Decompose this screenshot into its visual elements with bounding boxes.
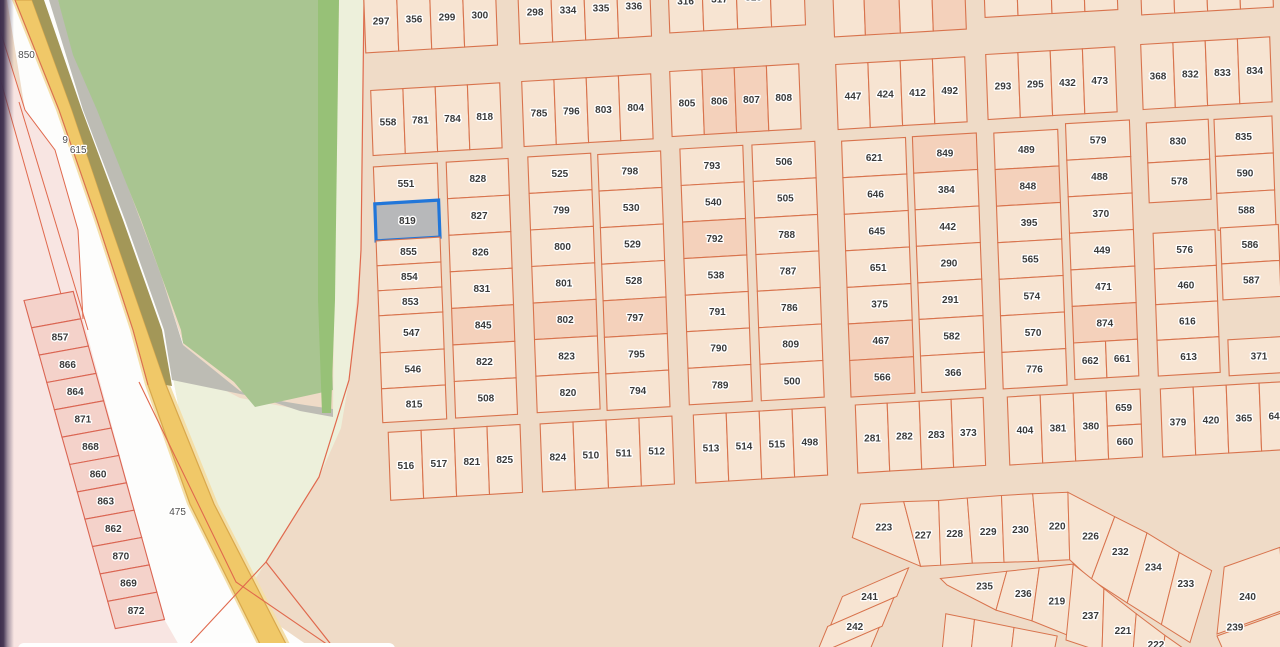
svg-text:467: 467 bbox=[873, 336, 890, 347]
svg-text:471: 471 bbox=[1095, 282, 1112, 293]
svg-text:833: 833 bbox=[1214, 68, 1231, 79]
svg-text:863: 863 bbox=[97, 497, 114, 508]
svg-text:869: 869 bbox=[120, 579, 137, 590]
svg-text:300: 300 bbox=[472, 11, 489, 22]
svg-text:447: 447 bbox=[845, 92, 862, 103]
svg-text:787: 787 bbox=[780, 267, 797, 278]
svg-text:797: 797 bbox=[627, 313, 644, 324]
svg-text:823: 823 bbox=[558, 352, 575, 363]
svg-text:616: 616 bbox=[1179, 316, 1196, 327]
svg-text:570: 570 bbox=[1025, 328, 1042, 339]
svg-text:281: 281 bbox=[864, 434, 881, 445]
svg-text:576: 576 bbox=[1176, 245, 1193, 256]
svg-text:850: 850 bbox=[18, 50, 35, 61]
svg-text:590: 590 bbox=[1237, 169, 1254, 180]
svg-text:645: 645 bbox=[869, 226, 886, 237]
svg-text:661: 661 bbox=[1114, 354, 1131, 365]
svg-text:788: 788 bbox=[778, 230, 795, 241]
svg-text:826: 826 bbox=[472, 247, 489, 258]
svg-text:547: 547 bbox=[403, 328, 420, 339]
svg-text:866: 866 bbox=[59, 360, 76, 371]
svg-text:791: 791 bbox=[709, 307, 726, 318]
svg-text:234: 234 bbox=[1145, 562, 1162, 573]
svg-text:475: 475 bbox=[169, 507, 186, 518]
svg-text:424: 424 bbox=[877, 90, 894, 101]
svg-text:798: 798 bbox=[621, 167, 638, 178]
svg-text:297: 297 bbox=[373, 17, 390, 28]
svg-text:805: 805 bbox=[679, 99, 696, 110]
svg-text:498: 498 bbox=[801, 438, 818, 449]
svg-text:802: 802 bbox=[557, 315, 574, 326]
svg-text:804: 804 bbox=[627, 103, 644, 114]
svg-text:540: 540 bbox=[705, 198, 722, 209]
svg-text:449: 449 bbox=[1094, 245, 1111, 256]
svg-text:232: 232 bbox=[1112, 547, 1129, 558]
svg-text:489: 489 bbox=[1018, 145, 1035, 156]
svg-text:512: 512 bbox=[648, 447, 665, 458]
svg-text:233: 233 bbox=[1177, 579, 1194, 590]
svg-text:420: 420 bbox=[1203, 416, 1220, 427]
svg-text:815: 815 bbox=[406, 399, 423, 410]
svg-text:442: 442 bbox=[939, 222, 956, 233]
svg-text:515: 515 bbox=[769, 440, 786, 451]
svg-text:579: 579 bbox=[1090, 136, 1107, 147]
svg-text:831: 831 bbox=[473, 284, 490, 295]
svg-text:290: 290 bbox=[941, 258, 958, 269]
svg-text:830: 830 bbox=[1170, 137, 1187, 148]
svg-text:230: 230 bbox=[1012, 525, 1029, 536]
svg-text:872: 872 bbox=[128, 606, 145, 617]
svg-text:227: 227 bbox=[915, 530, 932, 541]
svg-text:235: 235 bbox=[976, 581, 993, 592]
svg-text:283: 283 bbox=[928, 430, 945, 441]
svg-text:825: 825 bbox=[496, 455, 513, 466]
svg-text:530: 530 bbox=[623, 203, 640, 214]
svg-text:517: 517 bbox=[431, 459, 448, 470]
svg-text:356: 356 bbox=[406, 15, 423, 26]
svg-text:384: 384 bbox=[938, 185, 955, 196]
svg-text:827: 827 bbox=[471, 211, 488, 222]
svg-text:223: 223 bbox=[876, 522, 893, 533]
svg-text:809: 809 bbox=[782, 340, 799, 351]
svg-text:801: 801 bbox=[556, 279, 573, 290]
svg-text:808: 808 bbox=[775, 93, 792, 104]
svg-text:298: 298 bbox=[527, 8, 544, 19]
svg-text:807: 807 bbox=[743, 95, 760, 106]
svg-text:529: 529 bbox=[624, 240, 641, 251]
svg-text:473: 473 bbox=[1091, 76, 1108, 87]
svg-text:528: 528 bbox=[625, 276, 642, 287]
svg-text:510: 510 bbox=[582, 451, 599, 462]
svg-text:412: 412 bbox=[909, 88, 926, 99]
svg-text:793: 793 bbox=[704, 161, 721, 172]
svg-text:582: 582 bbox=[943, 331, 960, 342]
svg-text:828: 828 bbox=[469, 174, 486, 185]
svg-text:848: 848 bbox=[1019, 182, 1036, 193]
svg-text:506: 506 bbox=[776, 157, 793, 168]
svg-text:800: 800 bbox=[554, 242, 571, 253]
svg-text:228: 228 bbox=[946, 529, 963, 540]
svg-text:538: 538 bbox=[708, 271, 725, 282]
svg-text:565: 565 bbox=[1022, 255, 1039, 266]
svg-text:226: 226 bbox=[1082, 531, 1099, 542]
svg-text:365: 365 bbox=[1236, 414, 1253, 425]
svg-text:432: 432 bbox=[1059, 78, 1076, 89]
svg-text:660: 660 bbox=[1117, 437, 1134, 448]
svg-text:317: 317 bbox=[711, 0, 728, 6]
svg-text:860: 860 bbox=[90, 469, 107, 480]
svg-text:551: 551 bbox=[398, 179, 415, 190]
svg-text:291: 291 bbox=[942, 295, 959, 306]
svg-text:368: 368 bbox=[1150, 72, 1167, 83]
svg-text:781: 781 bbox=[412, 116, 429, 127]
svg-text:375: 375 bbox=[871, 299, 888, 310]
svg-text:832: 832 bbox=[1182, 70, 1199, 81]
svg-text:316: 316 bbox=[677, 0, 694, 8]
svg-text:784: 784 bbox=[444, 114, 461, 125]
svg-text:785: 785 bbox=[531, 109, 548, 120]
svg-text:819: 819 bbox=[399, 216, 416, 227]
svg-text:648: 648 bbox=[1268, 412, 1280, 423]
svg-text:404: 404 bbox=[1017, 426, 1034, 437]
svg-text:239: 239 bbox=[1227, 623, 1244, 634]
svg-text:864: 864 bbox=[67, 387, 84, 398]
svg-text:460: 460 bbox=[1178, 281, 1195, 292]
svg-text:299: 299 bbox=[439, 13, 456, 24]
svg-text:513: 513 bbox=[703, 444, 720, 455]
svg-text:855: 855 bbox=[400, 247, 417, 258]
svg-text:818: 818 bbox=[476, 112, 493, 123]
svg-text:558: 558 bbox=[380, 118, 397, 129]
svg-text:824: 824 bbox=[549, 453, 566, 464]
svg-text:849: 849 bbox=[937, 149, 954, 160]
svg-text:796: 796 bbox=[563, 107, 580, 118]
svg-text:662: 662 bbox=[1082, 356, 1099, 367]
svg-text:799: 799 bbox=[553, 206, 570, 217]
svg-text:615: 615 bbox=[70, 145, 87, 156]
svg-text:578: 578 bbox=[1171, 177, 1188, 188]
svg-text:587: 587 bbox=[1243, 276, 1260, 287]
svg-text:370: 370 bbox=[1092, 209, 1109, 220]
svg-text:854: 854 bbox=[401, 272, 418, 283]
svg-text:220: 220 bbox=[1049, 521, 1066, 532]
svg-text:835: 835 bbox=[1235, 132, 1252, 143]
svg-text:786: 786 bbox=[781, 303, 798, 314]
svg-text:373: 373 bbox=[960, 428, 977, 439]
svg-text:336: 336 bbox=[626, 2, 643, 13]
svg-text:371: 371 bbox=[1251, 352, 1268, 363]
svg-text:505: 505 bbox=[777, 194, 794, 205]
svg-text:845: 845 bbox=[475, 320, 492, 331]
svg-text:492: 492 bbox=[941, 86, 958, 97]
svg-text:488: 488 bbox=[1091, 172, 1108, 183]
svg-text:222: 222 bbox=[1148, 640, 1165, 647]
svg-text:659: 659 bbox=[1115, 403, 1132, 414]
svg-text:546: 546 bbox=[404, 365, 421, 376]
svg-text:874: 874 bbox=[1096, 318, 1113, 329]
svg-text:293: 293 bbox=[995, 82, 1012, 93]
svg-text:806: 806 bbox=[711, 97, 728, 108]
svg-text:318: 318 bbox=[745, 0, 762, 4]
svg-text:295: 295 bbox=[1027, 80, 1044, 91]
svg-text:790: 790 bbox=[710, 344, 727, 355]
svg-text:588: 588 bbox=[1238, 206, 1255, 217]
svg-text:319: 319 bbox=[779, 0, 796, 2]
svg-text:792: 792 bbox=[706, 234, 723, 245]
svg-text:862: 862 bbox=[105, 524, 122, 535]
svg-text:221: 221 bbox=[1115, 626, 1132, 637]
svg-text:511: 511 bbox=[616, 449, 633, 460]
svg-text:219: 219 bbox=[1048, 596, 1065, 607]
svg-text:242: 242 bbox=[847, 622, 864, 633]
svg-text:574: 574 bbox=[1023, 291, 1040, 302]
svg-text:236: 236 bbox=[1015, 589, 1032, 600]
svg-text:613: 613 bbox=[1180, 352, 1197, 363]
svg-text:871: 871 bbox=[74, 415, 91, 426]
svg-text:240: 240 bbox=[1239, 592, 1256, 603]
svg-text:566: 566 bbox=[874, 372, 891, 383]
svg-text:334: 334 bbox=[560, 6, 577, 17]
svg-text:621: 621 bbox=[866, 153, 883, 164]
svg-text:379: 379 bbox=[1170, 418, 1187, 429]
svg-text:803: 803 bbox=[595, 105, 612, 116]
svg-text:514: 514 bbox=[736, 442, 753, 453]
svg-text:794: 794 bbox=[630, 386, 647, 397]
svg-text:241: 241 bbox=[861, 592, 878, 603]
svg-text:282: 282 bbox=[896, 432, 913, 443]
svg-text:366: 366 bbox=[945, 368, 962, 379]
svg-text:380: 380 bbox=[1083, 422, 1100, 433]
svg-text:821: 821 bbox=[463, 457, 480, 468]
svg-text:237: 237 bbox=[1082, 611, 1099, 622]
svg-text:525: 525 bbox=[552, 169, 569, 180]
svg-text:229: 229 bbox=[980, 527, 997, 538]
svg-text:646: 646 bbox=[867, 190, 884, 201]
svg-text:870: 870 bbox=[113, 551, 130, 562]
svg-text:776: 776 bbox=[1026, 364, 1043, 375]
svg-text:9: 9 bbox=[62, 135, 68, 146]
svg-text:651: 651 bbox=[870, 263, 887, 274]
svg-text:508: 508 bbox=[478, 394, 495, 405]
svg-text:795: 795 bbox=[628, 349, 645, 360]
svg-text:335: 335 bbox=[593, 4, 610, 15]
svg-text:789: 789 bbox=[712, 380, 729, 391]
svg-text:868: 868 bbox=[82, 442, 99, 453]
svg-text:820: 820 bbox=[560, 388, 577, 399]
svg-text:395: 395 bbox=[1021, 218, 1038, 229]
svg-text:853: 853 bbox=[402, 297, 419, 308]
svg-text:834: 834 bbox=[1246, 66, 1263, 77]
svg-text:516: 516 bbox=[398, 461, 415, 472]
svg-text:500: 500 bbox=[784, 376, 801, 387]
svg-text:381: 381 bbox=[1050, 424, 1067, 435]
svg-text:822: 822 bbox=[476, 357, 493, 368]
svg-text:857: 857 bbox=[52, 333, 69, 344]
svg-text:586: 586 bbox=[1242, 240, 1259, 251]
